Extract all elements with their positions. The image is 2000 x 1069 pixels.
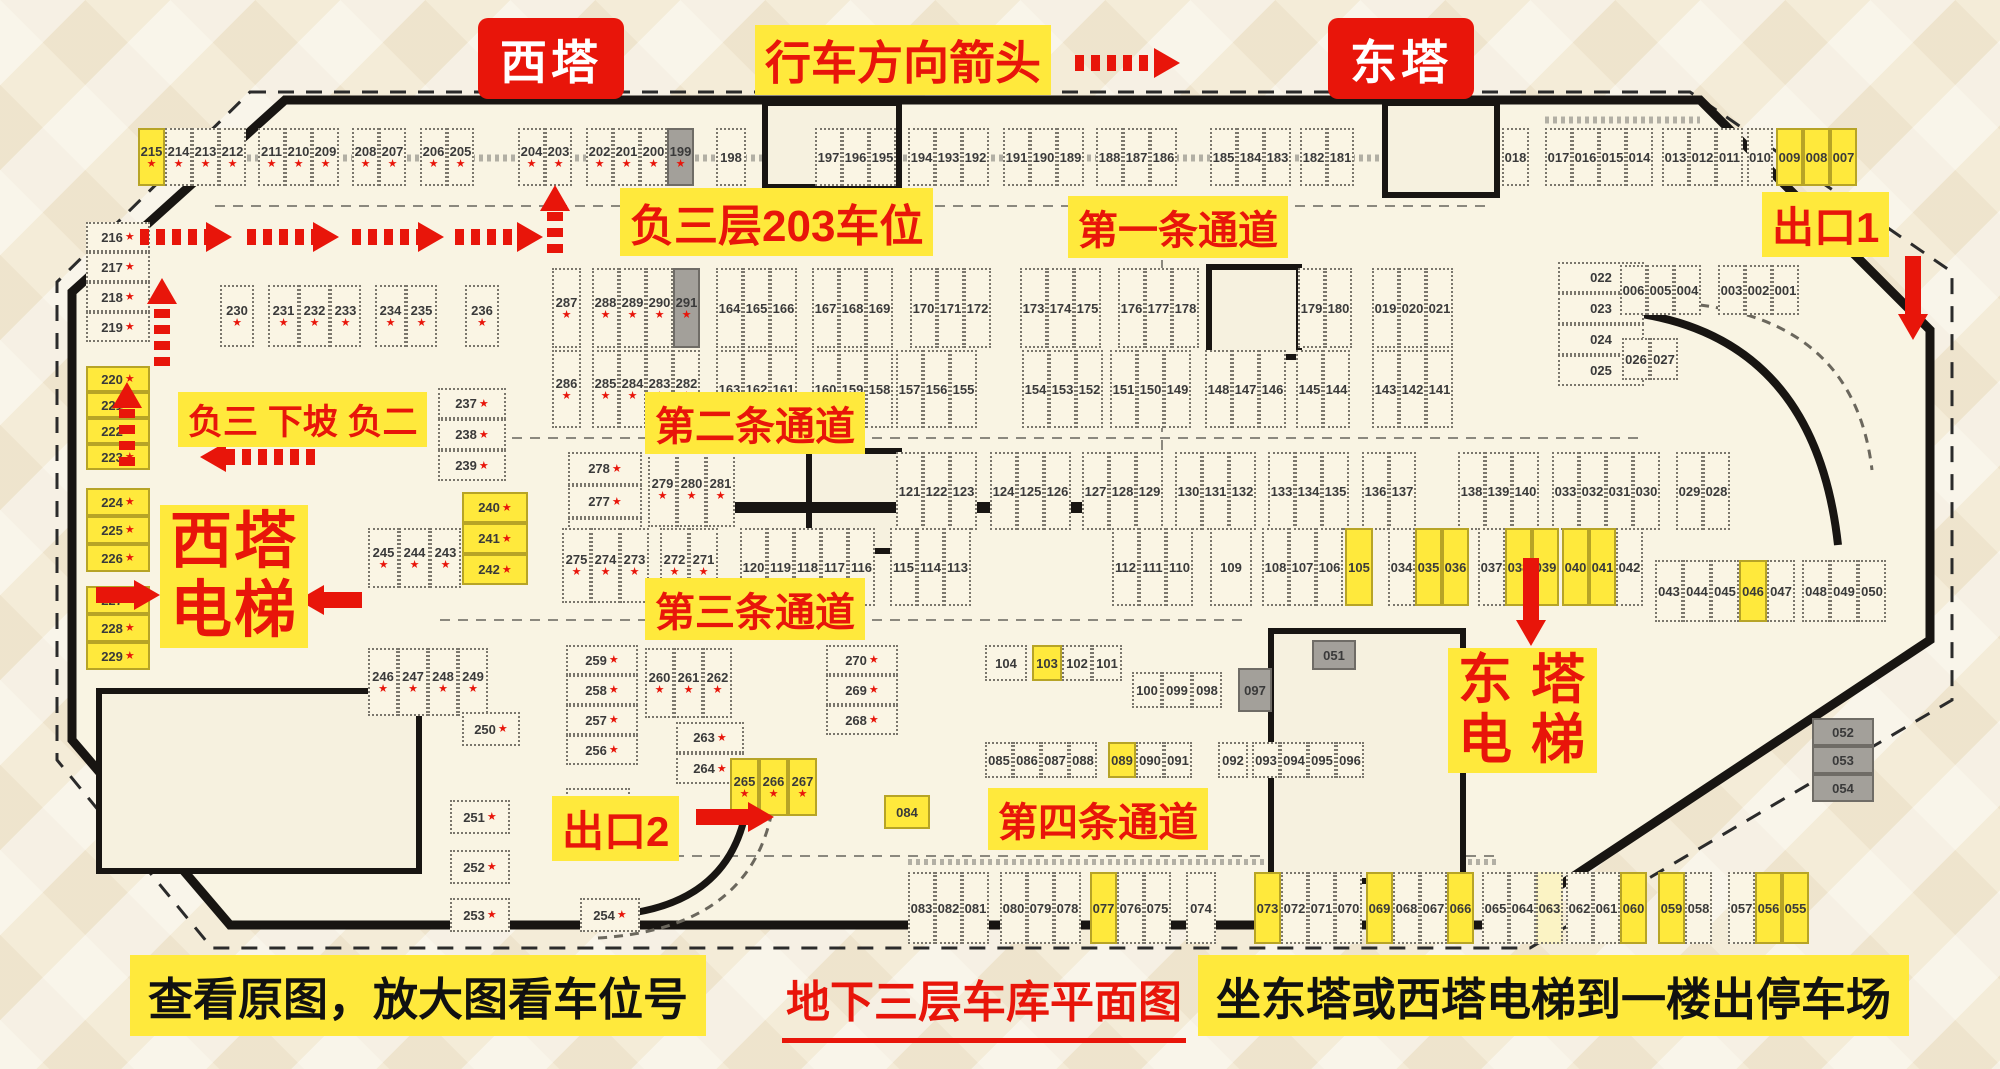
spot-number: 120 [743,561,765,574]
spot-number: 112 [1115,561,1136,574]
spot-number: 046 [1742,585,1764,598]
parking-spot-240: 240★ [462,492,528,523]
path-up-1-icon [147,278,177,366]
legend-arrow-icon [1075,48,1180,78]
spot-number: 070 [1338,902,1360,915]
spot-number: 059 [1661,902,1683,915]
parking-spot-279: 279★ [648,452,677,527]
spot-number: 072 [1284,902,1306,915]
parking-spot-093: 093 [1252,742,1280,778]
parking-spot-072: 072 [1281,872,1308,944]
parking-spot-281: 281★ [706,452,735,527]
spot-number: 194 [911,151,933,164]
star-icon: ★ [609,655,619,666]
parking-spot-075: 075 [1144,872,1171,944]
star-icon: ★ [361,159,371,170]
parking-spot-185: 185 [1210,128,1237,186]
parking-spot-158: 158 [866,350,893,428]
spot-number: 014 [1629,151,1651,164]
spot-number: 015 [1602,151,1624,164]
star-icon: ★ [601,567,611,578]
parking-spot-205: 205★ [447,128,474,186]
spot-number: 023 [1590,302,1612,315]
spot-number: 026 [1625,353,1647,366]
spot-number: 199 [670,145,692,158]
spot-number: 017 [1548,151,1570,164]
spot-number: 264 [693,762,715,775]
parking-spot-230: 230★ [220,285,254,347]
spot-number: 291 [676,296,698,309]
star-icon: ★ [147,159,157,170]
spot-number: 028 [1706,485,1728,498]
parking-spot-086: 086 [1013,742,1041,778]
spot-number: 168 [842,302,864,315]
spot-number: 175 [1077,302,1099,315]
star-icon: ★ [201,159,211,170]
parking-spot-130: 130 [1175,452,1202,530]
spot-number: 104 [995,657,1017,670]
spot-number: 260 [649,671,671,684]
parking-spot-244: 244★ [399,528,430,588]
parking-spot-113: 113 [944,528,971,606]
star-icon: ★ [456,159,466,170]
spot-number: 047 [1770,585,1792,598]
parking-spot-169: 169 [866,268,893,348]
spot-number: 048 [1805,585,1827,598]
spot-number: 278 [588,462,610,475]
parking-spot-044: 044 [1683,560,1711,622]
star-icon: ★ [609,715,619,726]
spot-number: 201 [616,145,638,158]
parking-spot-187: 187 [1123,128,1150,186]
spot-number: 021 [1429,302,1451,315]
parking-spot-009: 009 [1776,128,1803,186]
parking-spot-071: 071 [1308,872,1335,944]
spot-number: 170 [913,302,935,315]
spot-number: 209 [315,145,337,158]
parking-spot-046: 046 [1739,560,1767,622]
parking-spot-017: 017 [1545,128,1572,186]
parking-spot-288: 288★ [592,268,619,348]
star-icon: ★ [562,310,572,321]
spot-number: 210 [288,145,310,158]
spot-number: 024 [1590,333,1612,346]
parking-spot-261: 261★ [674,648,703,718]
parking-spot-180: 180 [1325,268,1352,348]
spot-number: 230 [226,304,248,317]
parking-spot-111: 111 [1139,528,1166,606]
parking-spot-065: 065 [1482,872,1509,944]
parking-spot-078: 078 [1054,872,1081,944]
parking-spot-104: 104 [985,645,1027,681]
parking-spot-250: 250★ [462,712,520,746]
spot-number: 196 [845,151,867,164]
star-icon: ★ [601,310,611,321]
spot-number: 191 [1006,151,1028,164]
parking-spot-097: 097 [1238,668,1272,712]
spot-number: 143 [1375,383,1397,396]
parking-spot-198: 198 [716,128,746,186]
spot-number: 180 [1328,302,1350,315]
spot-number: 073 [1257,902,1279,915]
parking-spot-284: 284★ [619,350,646,428]
spot-number: 256 [585,744,607,757]
spot-number: 268 [845,714,867,727]
parking-spot-193: 193 [935,128,962,186]
star-icon: ★ [798,789,808,800]
spot-number: 139 [1488,485,1510,498]
parking-spot-241: 241★ [462,523,528,554]
spot-number: 187 [1126,151,1148,164]
parking-spot-098: 098 [1192,672,1222,708]
parking-spot-121: 121 [896,452,923,530]
parking-spot-131: 131 [1202,452,1229,530]
parking-spot-043: 043 [1655,560,1683,622]
exit-2-label: 出口2 [552,796,679,861]
star-icon: ★ [716,491,726,502]
parking-spot-003: 003 [1718,265,1745,315]
parking-spot-103: 103 [1032,645,1062,681]
parking-spot-047: 047 [1767,560,1795,622]
spot-number: 217 [101,261,123,274]
parking-spot-135: 135 [1322,452,1349,530]
parking-spot-019: 019 [1372,268,1399,348]
spot-number: 164 [719,302,741,315]
parking-spot-233: 233★ [330,285,361,347]
parking-spot-184: 184 [1237,128,1264,186]
aisle-1-label: 第一条通道 [1068,196,1288,258]
star-icon: ★ [487,910,497,921]
star-icon: ★ [487,812,497,823]
parking-spot-137: 137 [1389,452,1416,530]
parking-spot-199: 199★ [667,128,694,186]
spot-number: 076 [1120,902,1142,915]
spot-number: 099 [1166,684,1188,697]
spot-number: 069 [1369,902,1391,915]
parking-spot-069: 069 [1366,872,1393,944]
spot-number: 207 [382,145,404,158]
spot-number: 243 [435,546,457,559]
parking-spot-041: 041 [1589,528,1616,606]
parking-spot-267: 267★ [788,758,817,816]
parking-spot-128: 128 [1109,452,1136,530]
star-icon: ★ [125,525,135,536]
parking-spot-186: 186 [1150,128,1177,186]
star-icon: ★ [125,497,135,508]
star-icon: ★ [609,685,619,696]
star-icon: ★ [502,503,512,514]
spot-number: 177 [1148,302,1170,315]
star-icon: ★ [388,159,398,170]
parking-spot-245: 245★ [368,528,399,588]
spot-number: 202 [589,145,611,158]
parking-spot-269: 269★ [826,675,898,705]
spot-number: 001 [1775,284,1797,297]
spot-number: 186 [1153,151,1175,164]
parking-spot-094: 094 [1280,742,1308,778]
star-icon: ★ [125,322,135,333]
star-icon: ★ [612,464,622,475]
parking-spot-029: 029 [1676,452,1703,530]
parking-spot-108: 108 [1262,528,1289,606]
parking-spot-027: 027 [1650,338,1678,380]
spot-number: 035 [1418,561,1440,574]
spot-number: 003 [1721,284,1743,297]
parking-spot-144: 144 [1323,350,1350,428]
spot-number: 269 [845,684,867,697]
star-icon: ★ [174,159,184,170]
parking-spot-062: 062 [1566,872,1593,944]
parking-spot-232: 232★ [299,285,330,347]
east-elevator-line2: 电 梯 [1458,710,1587,770]
parking-spot-011: 011 [1716,128,1743,186]
parking-spot-002: 002 [1745,265,1772,315]
spot-number: 137 [1392,485,1414,498]
exit-1-label: 出口1 [1762,192,1889,257]
parking-spot-181: 181 [1327,128,1354,186]
star-icon: ★ [228,159,238,170]
spot-number: 065 [1485,902,1507,915]
parking-spot-095: 095 [1308,742,1336,778]
spot-number: 214 [168,145,190,158]
parking-spot-174: 174 [1047,268,1074,348]
spot-number: 089 [1111,754,1133,767]
star-icon: ★ [687,491,697,502]
spot-number: 144 [1326,383,1348,396]
parking-spot-030: 030 [1633,452,1660,530]
spot-number: 049 [1833,585,1855,598]
spot-number: 267 [792,775,814,788]
parking-spot-256: 256★ [566,735,638,765]
spot-number: 081 [965,902,987,915]
spot-number: 157 [899,383,921,396]
parking-spot-243: 243★ [430,528,461,588]
spot-number: 019 [1375,302,1397,315]
parking-spot-018: 018 [1502,128,1529,186]
parking-garage-floorplan: 215★214★213★212★211★210★209★208★207★206★… [0,0,2000,1069]
parking-spot-064: 064 [1509,872,1536,944]
parking-spot-195: 195 [869,128,896,186]
parking-spot-211: 211★ [258,128,285,186]
parking-spot-150: 150 [1137,350,1164,428]
parking-spot-143: 143 [1372,350,1399,428]
path-up-2-icon [112,382,142,466]
spot-number: 041 [1592,561,1614,574]
spot-number: 249 [462,670,484,683]
spot-number: 211 [261,145,282,158]
parking-spot-151: 151 [1110,350,1137,428]
spot-number: 068 [1396,902,1418,915]
spot-number: 270 [845,654,867,667]
parking-spot-067: 067 [1420,872,1447,944]
west-tower-badge: 西塔 [478,18,624,99]
spot-number: 271 [693,553,715,566]
star-icon: ★ [125,292,135,303]
spot-number: 063 [1539,902,1561,915]
parking-spot-219: 219★ [86,312,150,342]
spot-number: 279 [652,477,674,490]
b3-spot-203-label: 负三层203车位 [620,188,933,256]
parking-spot-218: 218★ [86,282,150,312]
spot-number: 082 [938,902,960,915]
parking-spot-012: 012 [1689,128,1716,186]
parking-spot-206: 206★ [420,128,447,186]
parking-spot-189: 189 [1057,128,1084,186]
parking-spot-291: 291★ [673,268,700,348]
star-icon: ★ [562,391,572,402]
spot-number: 239 [455,459,477,472]
star-icon: ★ [655,310,665,321]
parking-spot-247: 247★ [398,648,428,716]
spot-number: 064 [1512,902,1534,915]
parking-spot-214: 214★ [165,128,192,186]
parking-spot-032: 032 [1579,452,1606,530]
star-icon: ★ [468,684,478,695]
parking-spot-070: 070 [1335,872,1362,944]
spot-number: 275 [566,553,588,566]
spot-number: 150 [1140,383,1162,396]
parking-spot-115: 115 [890,528,917,606]
parking-spot-007: 007 [1830,128,1857,186]
spot-number: 146 [1262,383,1284,396]
parking-spot-183: 183 [1264,128,1291,186]
spot-number: 045 [1714,585,1736,598]
parking-spot-228: 228★ [86,614,150,642]
parking-spot-165: 165 [743,268,770,348]
spot-number: 219 [101,321,123,334]
parking-spot-092: 092 [1218,742,1248,778]
parking-spot-290: 290★ [646,268,673,348]
spot-number: 237 [455,397,477,410]
spot-number: 231 [273,304,295,317]
parking-spot-020: 020 [1399,268,1426,348]
parking-spot-154: 154 [1022,350,1049,428]
spot-number: 051 [1323,649,1345,662]
star-icon: ★ [502,534,512,545]
star-icon: ★ [125,262,135,273]
spot-number: 236 [471,304,493,317]
parking-spot-033: 033 [1552,452,1579,530]
spot-number: 241 [478,532,500,545]
east-tower-badge: 东塔 [1328,18,1474,99]
spot-number: 056 [1758,902,1780,915]
parking-spot-237: 237★ [438,388,506,419]
parking-spot-089: 089 [1108,742,1136,778]
parking-spot-259: 259★ [566,645,638,675]
spot-number: 066 [1450,902,1472,915]
star-icon: ★ [267,159,277,170]
parking-spot-028: 028 [1703,452,1730,530]
parking-spot-061: 061 [1593,872,1620,944]
spot-number: 272 [664,553,686,566]
spot-number: 018 [1505,151,1527,164]
spot-number: 122 [926,485,948,498]
parking-spot-005: 005 [1647,265,1674,315]
spot-number: 181 [1330,151,1352,164]
spot-number: 132 [1232,485,1254,498]
parking-spot-013: 013 [1662,128,1689,186]
parking-spot-100: 100 [1132,672,1162,708]
spot-number: 022 [1590,271,1612,284]
parking-spot-249: 249★ [458,648,488,716]
spot-number: 036 [1445,561,1467,574]
spot-number: 097 [1244,684,1266,697]
spot-number: 212 [222,145,244,158]
parking-spot-147: 147 [1232,350,1259,428]
parking-spot-066: 066 [1447,872,1474,944]
parking-spot-252: 252★ [450,850,510,884]
parking-spot-114: 114 [917,528,944,606]
spot-number: 050 [1861,585,1883,598]
parking-spot-287: 287★ [552,268,581,348]
parking-spot-127: 127 [1082,452,1109,530]
parking-spot-132: 132 [1229,452,1256,530]
spot-number: 100 [1136,684,1158,697]
parking-spot-277: 277★ [568,485,642,518]
star-icon: ★ [378,684,388,695]
parking-spot-051: 051 [1312,640,1356,670]
parking-spot-257: 257★ [566,705,638,735]
parking-spot-081: 081 [962,872,989,944]
spot-number: 077 [1093,902,1115,915]
spot-number: 178 [1175,302,1197,315]
star-icon: ★ [617,910,627,921]
star-icon: ★ [769,789,779,800]
star-icon: ★ [125,623,135,634]
star-icon: ★ [595,159,605,170]
spot-number: 138 [1461,485,1483,498]
parking-spot-251: 251★ [450,800,510,834]
spot-number: 055 [1785,902,1807,915]
parking-spot-196: 196 [842,128,869,186]
parking-spot-280: 280★ [677,452,706,527]
parking-spot-175: 175 [1074,268,1101,348]
parking-spot-142: 142 [1399,350,1426,428]
parking-spot-126: 126 [1044,452,1071,530]
spot-number: 148 [1208,383,1230,396]
spot-number: 119 [770,561,791,574]
star-icon: ★ [438,684,448,695]
parking-spot-058: 058 [1685,872,1712,944]
path-right-3-icon [352,222,444,252]
east-elevator-down-arrow-icon [1516,558,1546,646]
parking-spot-191: 191 [1003,128,1030,186]
parking-spot-057: 057 [1728,872,1755,944]
spot-number: 088 [1072,754,1094,767]
parking-spot-140: 140 [1512,452,1539,530]
mid-stair-core [1206,264,1302,360]
spot-number: 033 [1555,485,1577,498]
spot-number: 107 [1292,561,1314,574]
spot-number: 176 [1121,302,1143,315]
star-icon: ★ [441,560,451,571]
spot-number: 030 [1636,485,1658,498]
star-icon: ★ [479,461,489,472]
parking-spot-105: 105 [1345,528,1373,606]
spot-number: 251 [463,811,485,824]
west-elevator-label: 西塔 电梯 [160,505,308,648]
parking-spot-125: 125 [1017,452,1044,530]
parking-spot-055: 055 [1782,872,1809,944]
star-icon: ★ [713,685,723,696]
parking-spot-136: 136 [1362,452,1389,530]
parking-spot-109: 109 [1210,528,1252,606]
spot-number: 206 [423,145,445,158]
parking-spot-031: 031 [1606,452,1633,530]
spot-number: 114 [920,561,941,574]
spot-number: 126 [1047,485,1069,498]
star-icon: ★ [294,159,304,170]
